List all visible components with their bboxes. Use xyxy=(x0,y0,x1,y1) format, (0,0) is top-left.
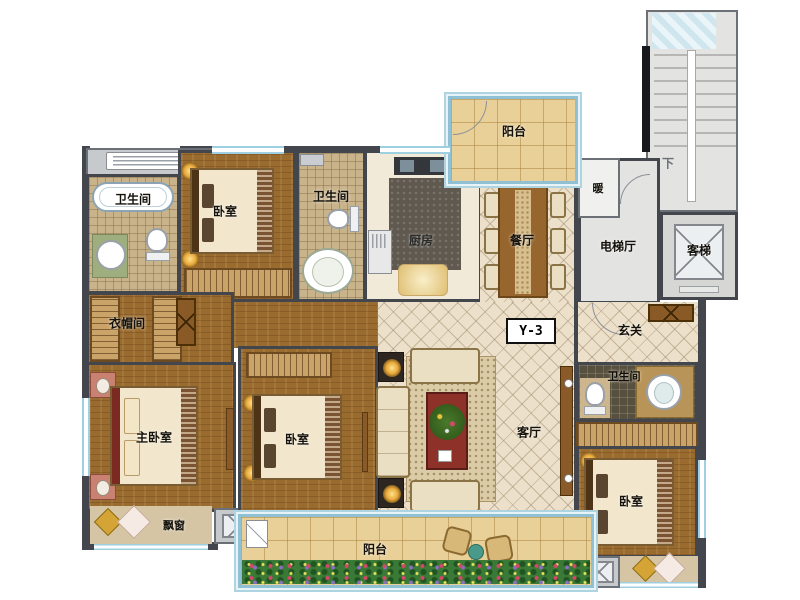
planter-flowers xyxy=(242,560,590,584)
label-cloakroom: 衣帽间 xyxy=(109,315,145,332)
window xyxy=(698,460,706,538)
desk-strip xyxy=(362,412,368,472)
toilet-icon-1 xyxy=(146,228,168,252)
label-elevator-hall: 电梯厅 xyxy=(600,238,636,255)
window xyxy=(94,544,208,550)
toilet-icon-3 xyxy=(585,382,605,406)
label-foyer: 玄关 xyxy=(618,322,642,339)
shoe-cabinet-icon xyxy=(648,304,694,322)
sofa-chair xyxy=(410,348,480,384)
kitchen-sink-cabinet xyxy=(368,230,392,274)
floor-lamp xyxy=(378,478,404,508)
wall-right xyxy=(698,296,706,588)
label-kitchen: 厨房 xyxy=(409,232,433,249)
stove-icon xyxy=(394,157,450,175)
unit-code-badge: Y-3 xyxy=(506,318,556,344)
stair-rail xyxy=(687,50,696,202)
label-elevator: 客梯 xyxy=(687,242,711,259)
round-sink-icon xyxy=(646,374,682,410)
elevator-door-slot xyxy=(679,286,719,293)
counter-lamp xyxy=(398,264,448,296)
shelf-icon xyxy=(300,154,324,166)
toilet-icon-2 xyxy=(327,209,349,229)
floor-lamp xyxy=(378,352,404,382)
label-balcony-bottom: 阳台 xyxy=(363,541,387,558)
label-balcony-top: 阳台 xyxy=(502,123,526,140)
kitchen-island xyxy=(389,178,461,270)
sofa-chair xyxy=(410,480,480,512)
window xyxy=(620,582,698,588)
label-living: 客厅 xyxy=(517,424,541,441)
toilet-tank-2 xyxy=(350,206,359,232)
tub-icon-2 xyxy=(302,248,354,294)
washing-machine-icon xyxy=(246,520,268,548)
label-bedroom-top-left: 卧室 xyxy=(213,203,237,220)
floor-plan: 卫生间 卧室 衣帽间 卫生间 厨房 阳台 餐厅 暖 电梯厅 客梯 下 玄关 客厅… xyxy=(0,0,800,600)
stair-window xyxy=(652,13,716,49)
toilet-tank-1 xyxy=(146,252,170,261)
dining-chair xyxy=(550,192,566,218)
label-bath-right: 卫生间 xyxy=(608,368,641,384)
label-stairs-down: 下 xyxy=(662,155,674,172)
label-bay-window: 飘窗 xyxy=(163,517,185,533)
label-bath-top-left: 卫生间 xyxy=(115,191,151,208)
label-bath-top-mid: 卫生间 xyxy=(313,188,349,205)
tv-cabinet xyxy=(560,366,573,496)
label-dining: 餐厅 xyxy=(510,232,534,249)
window xyxy=(380,146,450,154)
stair-wall-black xyxy=(642,46,650,152)
unit-code-text: Y-3 xyxy=(519,324,542,339)
balcony-table xyxy=(468,544,484,560)
tv-stand xyxy=(226,408,234,470)
label-bedroom-mid: 卧室 xyxy=(285,431,309,448)
corridor xyxy=(234,300,380,348)
window xyxy=(82,398,90,476)
wardrobe-icon xyxy=(246,352,332,378)
flower-bouquet-icon xyxy=(429,404,465,440)
label-bedroom-right: 卧室 xyxy=(619,493,643,510)
sofa-long xyxy=(376,386,410,478)
dining-chair xyxy=(550,264,566,290)
wardrobe-icon xyxy=(576,422,698,448)
cabinet-icon xyxy=(176,298,196,346)
table-card xyxy=(438,450,452,462)
sink-icon xyxy=(96,240,126,270)
label-master-bedroom: 主卧室 xyxy=(136,429,172,446)
window xyxy=(212,146,284,154)
label-heating: 暖 xyxy=(593,180,604,196)
dining-chair xyxy=(550,228,566,254)
toilet-tank-3 xyxy=(584,406,606,415)
